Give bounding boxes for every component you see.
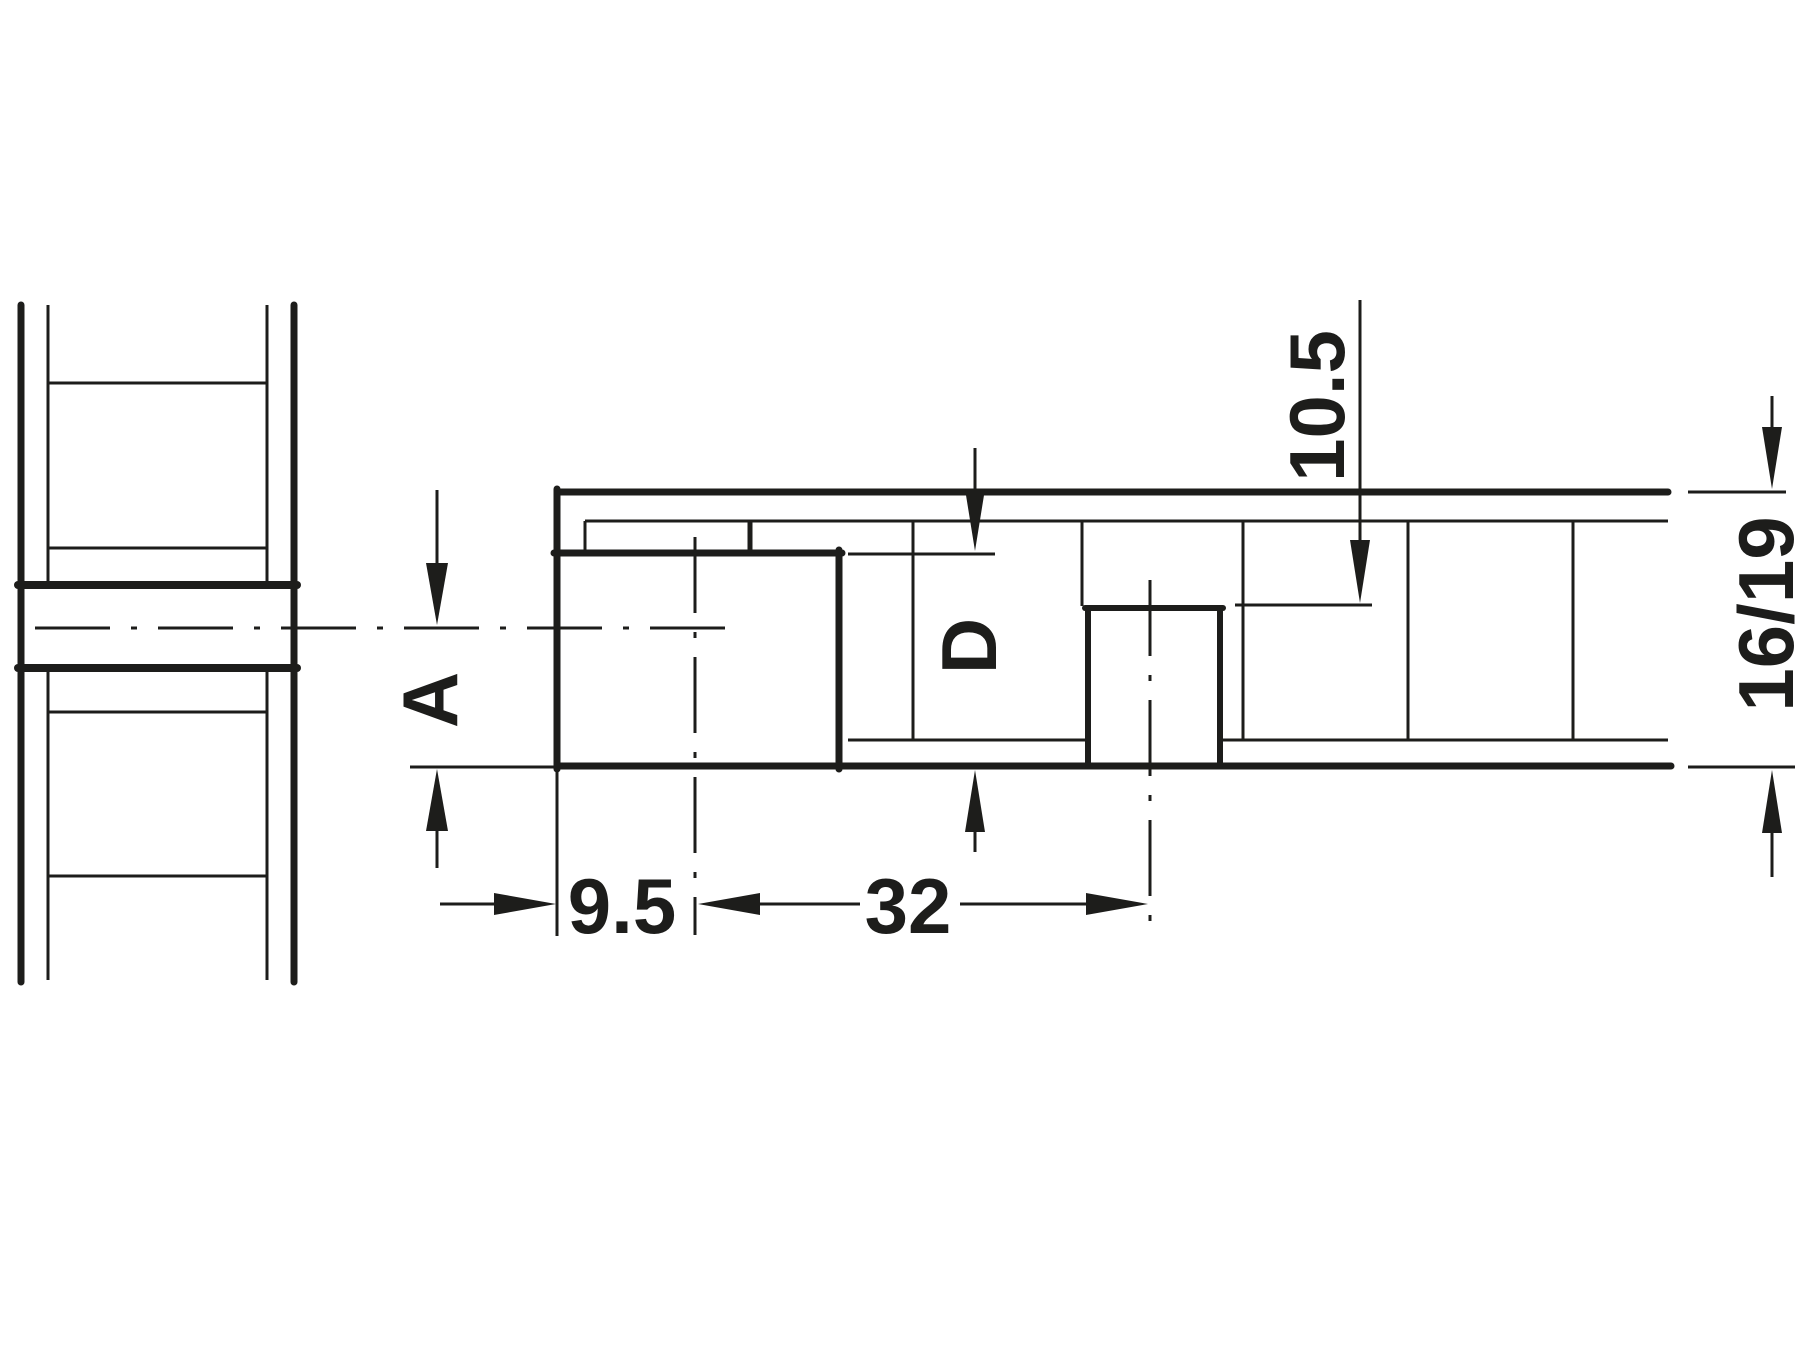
dim-16-19-lower-arrowhead-icon	[1762, 770, 1782, 833]
dimension-a: A	[386, 490, 474, 868]
technical-drawing-page: A 9.5 32 D 10.5	[0, 0, 1800, 1350]
dim-a-upper-arrowhead-icon	[426, 563, 448, 625]
dim-10-5-label: 10.5	[1273, 330, 1361, 482]
dim-16-19-upper-arrowhead-icon	[1762, 427, 1782, 489]
drawing-canvas: A 9.5 32 D 10.5	[0, 0, 1800, 1350]
sleeve-rectangle	[585, 521, 750, 552]
dim-32-label: 32	[865, 862, 952, 950]
dim-d-lower-arrowhead-icon	[965, 770, 985, 832]
dimension-9-5-and-32: 9.5 32	[440, 770, 1148, 950]
dimension-16-19: 16/19	[1688, 396, 1800, 877]
left-panel-edge-view	[18, 305, 297, 982]
dim-9-5-left-arrowhead-icon	[494, 893, 556, 915]
dim-a-label: A	[386, 672, 474, 728]
dim-10-5-arrowhead-icon	[1350, 540, 1370, 603]
dimension-d: D	[925, 448, 1013, 852]
dim-9-5-label: 9.5	[568, 862, 676, 950]
dim-d-label: D	[925, 618, 1013, 674]
bolt-hole-rectangle	[1085, 608, 1223, 766]
dim-32-right-arrowhead-icon	[1086, 893, 1148, 915]
dim-32-left-arrowhead-icon	[698, 893, 760, 915]
dimension-10-5: 10.5	[1273, 300, 1370, 603]
dim-a-lower-arrowhead-icon	[426, 769, 448, 831]
dim-16-19-label: 16/19	[1722, 516, 1800, 711]
